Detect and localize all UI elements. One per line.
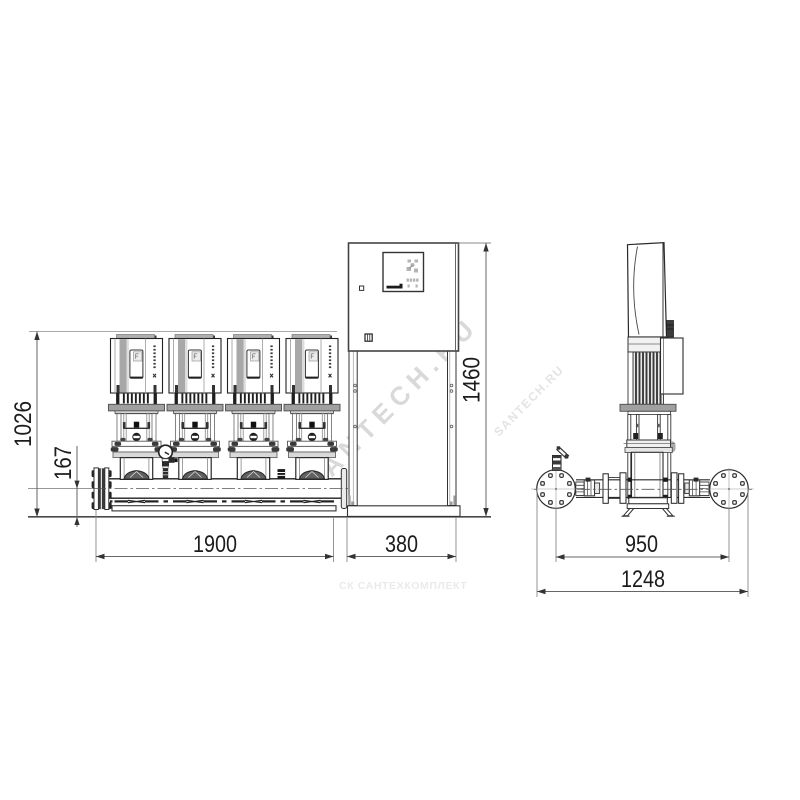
svg-text:380: 380	[385, 531, 418, 558]
svg-text:1460: 1460	[459, 357, 486, 403]
svg-text:1026: 1026	[10, 401, 37, 447]
svg-text:1248: 1248	[621, 566, 665, 593]
svg-text:950: 950	[625, 531, 658, 558]
svg-text:1900: 1900	[193, 531, 237, 558]
svg-text:СК САНТЕХКОМПЛЕКТ: СК САНТЕХКОМПЛЕКТ	[339, 580, 467, 592]
svg-text:167: 167	[50, 446, 77, 480]
